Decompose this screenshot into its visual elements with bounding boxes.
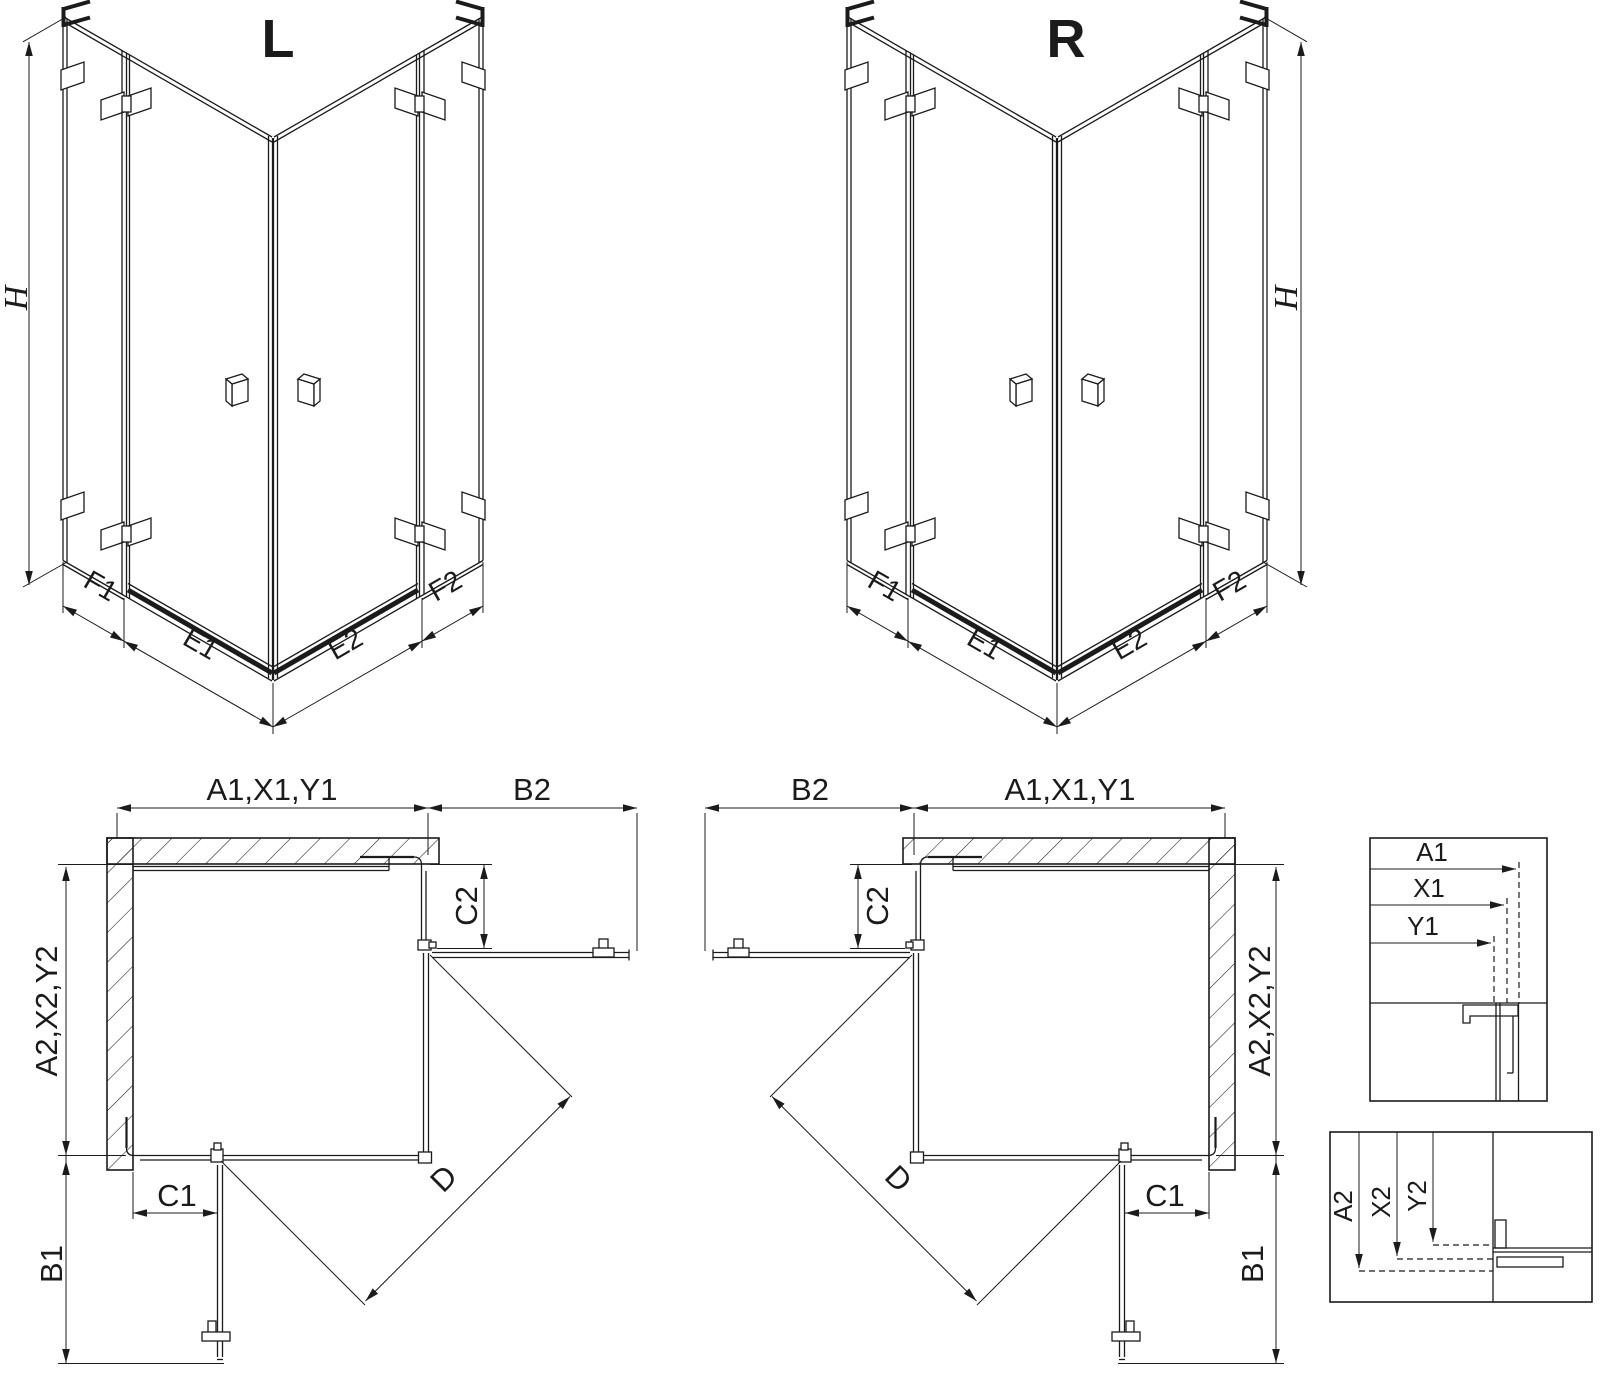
dim-label-depth-plan-right: A2,X2,Y2 <box>1242 946 1277 1077</box>
detail-label-x1: X1 <box>1413 873 1445 903</box>
dim-label-b1-plan-right: B1 <box>1235 1245 1270 1283</box>
dim-label-depth-plan-left: A2,X2,Y2 <box>29 946 64 1077</box>
dim-label-h-right: H <box>1268 283 1305 311</box>
dim-label-c1-plan-left: C1 <box>157 1178 197 1213</box>
drawing-sheet: L H F1 E1 E2 F2 R H F2 E2 E1 F1 A1,X1,Y1… <box>0 0 1600 1373</box>
dim-label-width-plan-right: A1,X1,Y1 <box>1005 772 1136 807</box>
technical-drawing-svg: L H F1 E1 E2 F2 R H F2 E2 E1 F1 A1,X1,Y1… <box>0 0 1600 1373</box>
detail-label-x2: X2 <box>1366 1186 1396 1218</box>
dim-label-b1-plan-left: B1 <box>34 1245 69 1283</box>
detail-label-a2: A2 <box>1328 1190 1358 1222</box>
dim-label-b2-plan-right: B2 <box>791 772 829 807</box>
wall-section-side <box>107 838 133 1170</box>
dim-label-b2-plan-left: B2 <box>513 772 551 807</box>
variant-label-left: L <box>262 9 295 69</box>
variant-label-right: R <box>1047 9 1086 69</box>
wall-section-side <box>1209 838 1235 1170</box>
sheet-background <box>0 0 1600 1373</box>
detail-label-y2: Y2 <box>1402 1180 1432 1212</box>
detail-label-a1: A1 <box>1416 837 1448 867</box>
dim-label-c1-plan-right: C1 <box>1145 1178 1185 1213</box>
dim-label-width-plan-left: A1,X1,Y1 <box>207 772 338 807</box>
dim-label-h-left: H <box>0 283 35 311</box>
dim-label-c2-plan-right: C2 <box>860 886 895 926</box>
dim-label-c2-plan-left: C2 <box>449 886 484 926</box>
detail-label-y1: Y1 <box>1407 911 1439 941</box>
